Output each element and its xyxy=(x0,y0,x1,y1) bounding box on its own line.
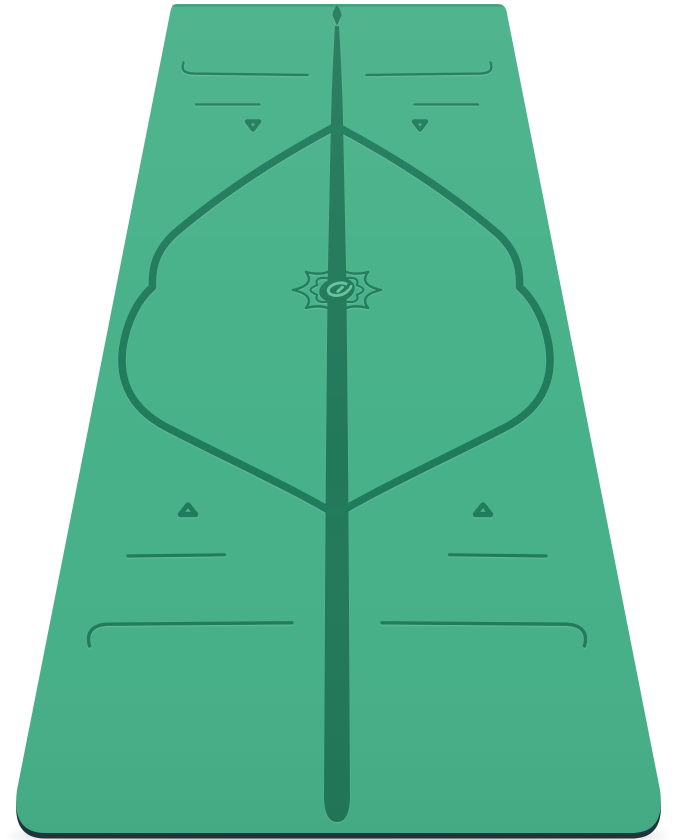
yoga-mat-figure xyxy=(0,0,675,840)
product-image-canvas xyxy=(0,0,675,840)
yoga-mat-illustration xyxy=(0,0,675,840)
mat-sheen xyxy=(16,4,661,833)
